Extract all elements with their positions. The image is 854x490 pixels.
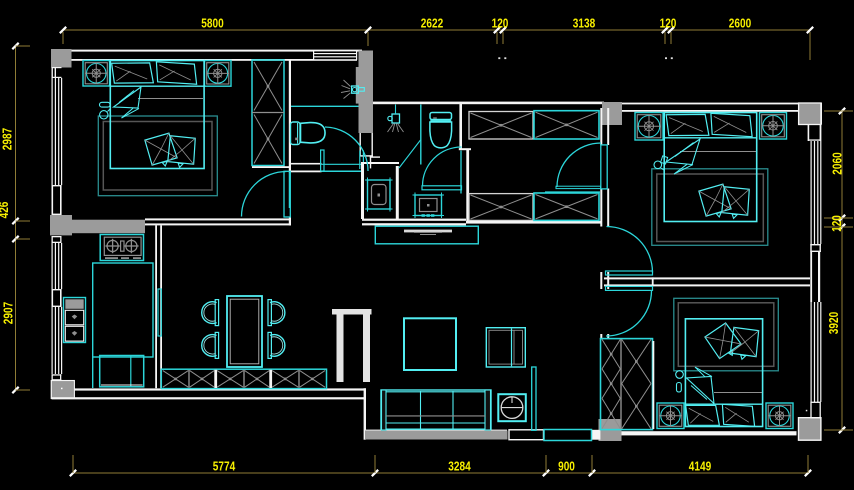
svg-text:4149: 4149	[689, 459, 711, 474]
svg-text:2060: 2060	[830, 152, 845, 174]
svg-text:2600: 2600	[729, 16, 751, 31]
svg-text:3284: 3284	[448, 459, 471, 474]
svg-text:5774: 5774	[213, 459, 236, 474]
svg-text:3138: 3138	[573, 16, 595, 31]
svg-text:5800: 5800	[201, 16, 223, 31]
svg-text:2907: 2907	[1, 302, 16, 324]
svg-text:426: 426	[0, 202, 11, 219]
svg-text:120: 120	[660, 16, 677, 31]
svg-text:120: 120	[829, 215, 844, 232]
svg-text:3920: 3920	[826, 312, 841, 334]
svg-text:900: 900	[558, 459, 575, 474]
svg-text:120: 120	[492, 16, 509, 31]
svg-text:2987: 2987	[0, 128, 15, 150]
svg-text:2622: 2622	[421, 16, 443, 31]
